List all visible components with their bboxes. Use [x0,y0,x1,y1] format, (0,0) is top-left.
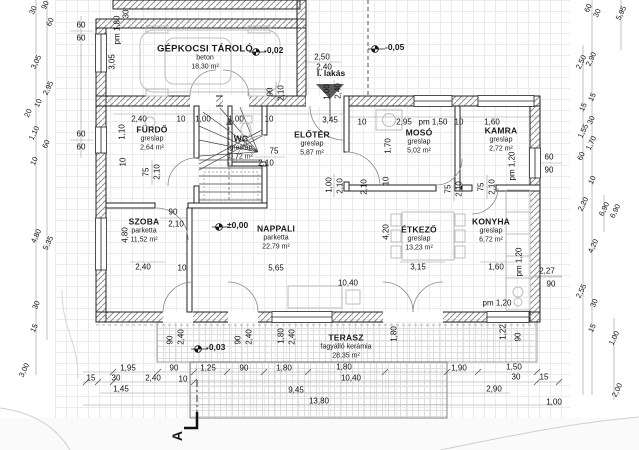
room-name-garage: GÉPKOCSI TÁROLÓ [157,45,253,54]
dim-label: 60 [77,21,86,30]
dim-label: 1,80 [276,364,292,373]
dim-label: 75 [142,168,151,177]
dim-label: pm 1,20 [483,299,512,308]
side-table [346,290,360,304]
room-label-konyha: KONYHAgreslap6,72 m² [472,218,510,245]
room-name-nappali: NAPPALI [257,225,295,234]
room-name-szoba: SZOBA [129,218,160,227]
room-area-nappali: 22,79 m² [257,243,295,252]
dim-label: 90 [169,208,178,217]
level-label: -0,02 [264,45,283,55]
dim-label: 2,10 [168,220,184,229]
room-area-terasz: 28,35 m² [321,352,372,361]
room-finish-szoba: parketta [129,227,160,236]
dim-label: 2,40 [334,83,343,99]
dim-label: 2,10 [360,179,369,195]
sofa [288,286,342,308]
room-area-eloter: 5,87 m² [294,149,330,158]
dim-label: 10 [455,118,464,127]
level-label: -0,03 [206,342,225,352]
room-finish-furdo: greslap [136,135,167,144]
floor-plan-canvas: GÉPKOCSI TÁROLÓbeton18,30 m²FÜRDŐgreslap… [0,0,639,450]
dim-label: pm 1,80 [113,16,122,45]
room-finish-etkezo: greslap [401,235,437,244]
dim-label: 90 [266,88,275,97]
chair [391,214,401,226]
dim-label: 1,50 [506,363,522,372]
room-label-eloter: ELŐTÉRgreslap5,87 m² [294,131,330,158]
dim-label: 2,40 [177,329,186,345]
level-label: -0,05 [385,42,404,52]
dim-label: 3,05 [108,54,117,70]
dim-label: 10 [382,177,391,186]
dim-label: 2,10 [277,85,286,101]
dim-label: 30 [512,373,521,382]
dim-label: 1,60 [488,263,504,272]
dim-label: 4,20 [382,224,391,240]
dim-label: 1,90 [451,364,467,373]
room-name-etkezo: ÉTKEZŐ [401,226,437,235]
dim-label: 1,10 [118,124,127,140]
dim-label: 2,40 [145,374,161,383]
dim-label: 1,95 [120,364,136,373]
room-name-kamra: KAMRA [485,127,518,136]
dim-label: 2,10 [336,178,345,194]
room-label-furdo: FÜRDŐgreslap2,64 m² [136,126,167,153]
room-finish-garage: beton [157,54,253,63]
sink [514,298,522,306]
site-curve-left2 [62,290,78,378]
dim-label: 5,65 [268,264,284,273]
room-label-nappali: NAPPALIparketta22,79 m² [257,225,295,252]
dim-label: 15 [87,374,96,383]
dim-label: pm 1,20 [508,152,517,181]
dim-label: 1,00 [195,115,211,124]
dim-label: 1,45 [113,385,129,394]
room-area-garage: 18,30 m² [157,63,253,72]
dim-label: 30 [112,374,121,383]
dim-label: 2,10 [258,159,274,168]
dim-label: 90 [240,364,249,373]
sink [513,287,523,297]
dim-label: 90 [514,333,523,342]
dim-label: 3,45 [322,116,338,125]
dim-label: 4,80 [121,227,130,243]
dim-label: 1,22 [499,324,508,340]
dim-label: 2,10 [153,164,162,180]
dim-label: 2,95 [396,118,412,127]
room-label-szoba: SZOBAparketta11,52 m² [129,218,160,245]
dim-label: 2,40 [245,329,254,345]
room-label-moso: MOSÓgreslap5,02 m² [406,129,433,156]
dim-label: 1,00 [323,84,332,100]
room-finish-konyha: greslap [472,227,510,236]
dim-label: 90 [234,336,243,345]
dim-label: 1,00 [546,398,562,407]
chair [391,230,401,242]
dim-label: 90 [170,364,179,373]
bottom-margin [0,418,639,450]
dim-label: 60 [77,143,86,152]
dwelling-label: I. lakás [317,68,345,78]
room-finish-terasz: fagyálló kerámia [321,343,372,352]
room-name-wc: WC [229,135,253,144]
dim-label: 60 [545,153,554,162]
dim-label: 2,27 [539,267,555,276]
dim-label: 10 [177,115,186,124]
section-letter: A [169,431,185,441]
dim-label: 1,00 [325,177,334,193]
room-finish-moso: greslap [406,138,433,147]
dim-label: 75 [270,147,279,156]
dim-label: 9,45 [288,386,304,395]
room-area-furdo: 2,64 m² [136,144,167,153]
dim-label: 75 [444,185,453,194]
dim-label: 2,40 [131,115,147,124]
room-finish-nappali: parketta [257,234,295,243]
room-area-szoba: 11,52 m² [129,236,160,245]
dim-label: 10 [179,375,188,384]
dim-label: 10 [119,158,128,167]
dim-label: 1,80 [336,363,352,372]
room-finish-eloter: greslap [294,140,330,149]
chair [455,214,465,226]
dim-label: 1,80 [390,326,399,342]
dim-label: 10 [358,118,367,127]
dim-label: 10 [178,264,187,273]
dim-label: pm 1,20 [515,248,524,277]
room-name-terasz: TERASZ [321,334,372,343]
room-name-eloter: ELŐTÉR [294,131,330,140]
dim-label: 1,60 [484,118,500,127]
dim-label: 30 [122,10,131,19]
dim-label: 90 [545,166,554,175]
dim-label: 90 [547,280,556,289]
dim-label: 3,15 [410,263,426,272]
room-finish-kamra: greslap [485,136,518,145]
dim-label: 10 [265,115,274,124]
chair [455,246,465,258]
chair [455,230,465,242]
dim-label: 75 [477,183,486,192]
room-area-wc: 0,72 m² [229,153,253,162]
room-name-moso: MOSÓ [406,129,433,138]
dim-label: 1,80 [277,328,286,344]
level-marker-entry [368,46,385,53]
room-name-konyha: KONYHA [472,218,510,227]
level-label: ±0,00 [227,220,248,230]
room-area-konyha: 6,72 m² [472,236,510,245]
dim-label: 10,40 [338,279,358,288]
room-area-moso: 5,02 m² [406,147,433,156]
chair [391,246,401,258]
dim-label: 90 [166,336,175,345]
room-label-terasz: TERASZfagyálló kerámia28,35 m² [321,334,372,361]
room-label-etkezo: ÉTKEZŐgreslap13,23 m² [401,226,437,253]
dim-label: 10,40 [341,374,361,383]
dim-label: 2,40 [135,263,151,272]
room-label-garage: GÉPKOCSI TÁROLÓbeton18,30 m² [157,45,253,72]
dim-label: 15 [540,373,549,382]
interior-walls [106,96,540,312]
washing-machine-drum [383,114,396,127]
dim-label: 2,90 [486,385,502,394]
dim-label: 1,70 [384,138,393,154]
dim-label: 2,50 [314,53,330,62]
room-name-furdo: FÜRDŐ [136,126,167,135]
room-area-etkezo: 13,23 m² [401,244,437,253]
dim-label: 2,10 [455,181,464,197]
dim-label: 1,00 [228,115,244,124]
dim-label: 60 [77,34,86,43]
dim-label: 2,10 [488,179,497,195]
dim-label: 1,25 [200,364,216,373]
dim-label: 2,40 [288,329,297,345]
dim-label: 13,80 [309,397,329,406]
dim-label: pm 1,50 [419,118,448,127]
room-label-wc: WCgreslap0,72 m² [229,135,253,162]
dim-label: 60 [77,130,86,139]
room-label-kamra: KAMRAgreslap2,72 m² [485,127,518,154]
room-finish-wc: greslap [229,144,253,153]
